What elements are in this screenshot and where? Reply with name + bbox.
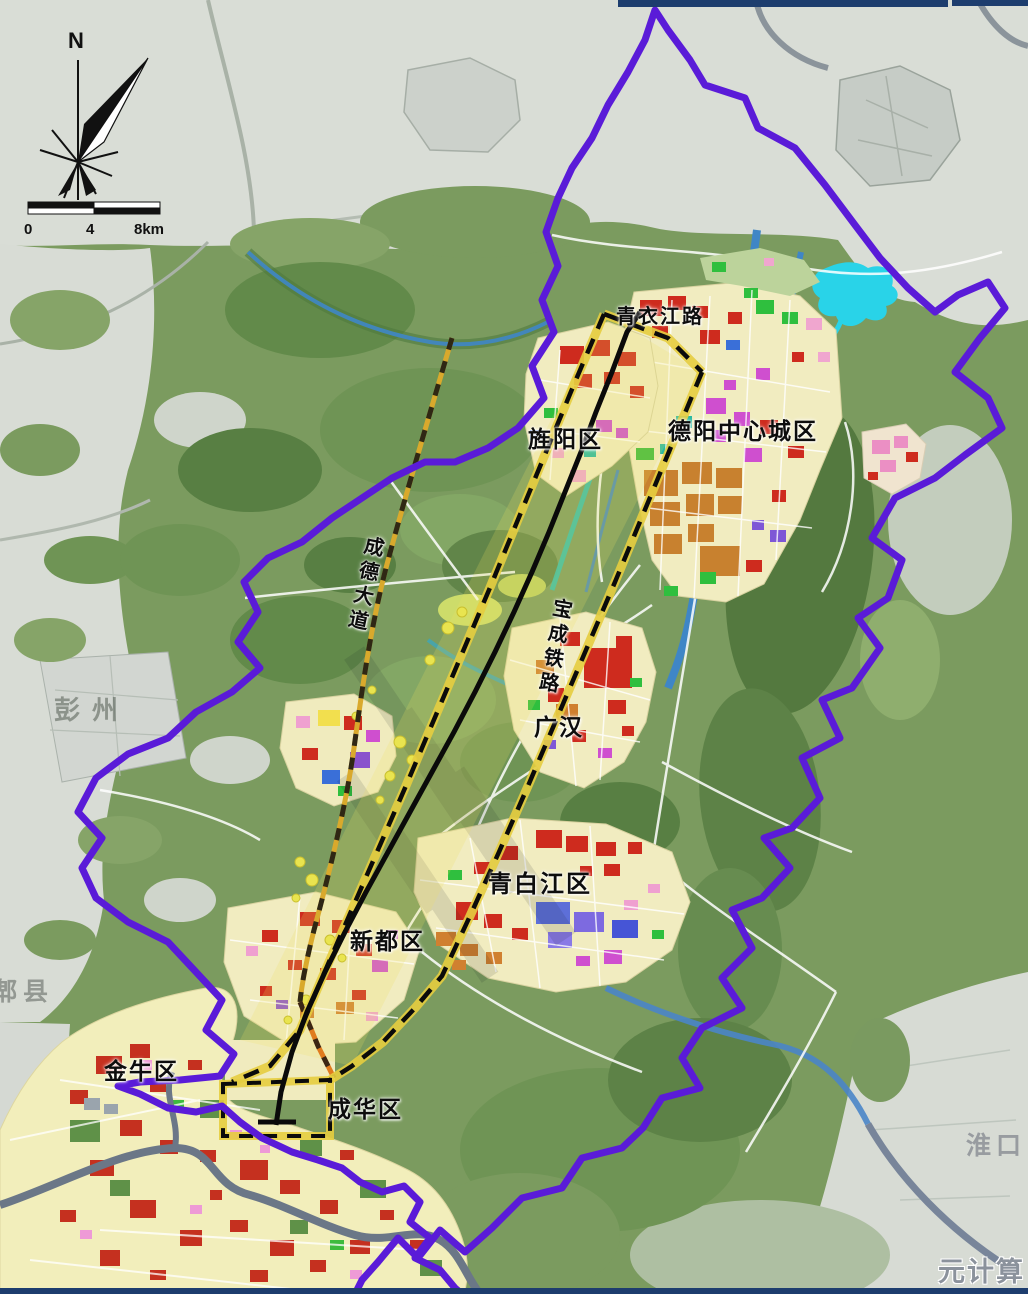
scale-tick-0: 0	[24, 221, 32, 238]
scale-tick-end: 8km	[134, 221, 164, 238]
planning-map: N 0 4 8km 青衣江路 德阳中心城区 旌阳区 成德大道 宝成铁路 广汉 青…	[0, 0, 1028, 1294]
label-pixian: 郫县	[0, 972, 54, 1008]
label-pengzhou: 彭州	[54, 690, 130, 727]
label-guanghan: 广汉	[534, 708, 584, 742]
compass-north-label: N	[68, 28, 84, 53]
label-xindu: 新都区	[350, 922, 425, 956]
label-qingbaijiang: 青白江区	[488, 864, 592, 899]
label-chenghua: 成华区	[328, 1090, 403, 1124]
label-deyang-center: 德阳中心城区	[668, 412, 818, 446]
label-qingyijiang-road: 青衣江路	[616, 300, 704, 329]
label-huaikou: 淮口	[966, 1126, 1026, 1162]
label-jinniu: 金牛区	[104, 1052, 179, 1086]
map-canvas: N 0 4 8km	[0, 0, 1028, 1294]
watermark-text: 元计算	[938, 1250, 1025, 1289]
label-jingyang: 旌阳区	[528, 420, 603, 454]
scale-tick-mid: 4	[86, 221, 95, 238]
